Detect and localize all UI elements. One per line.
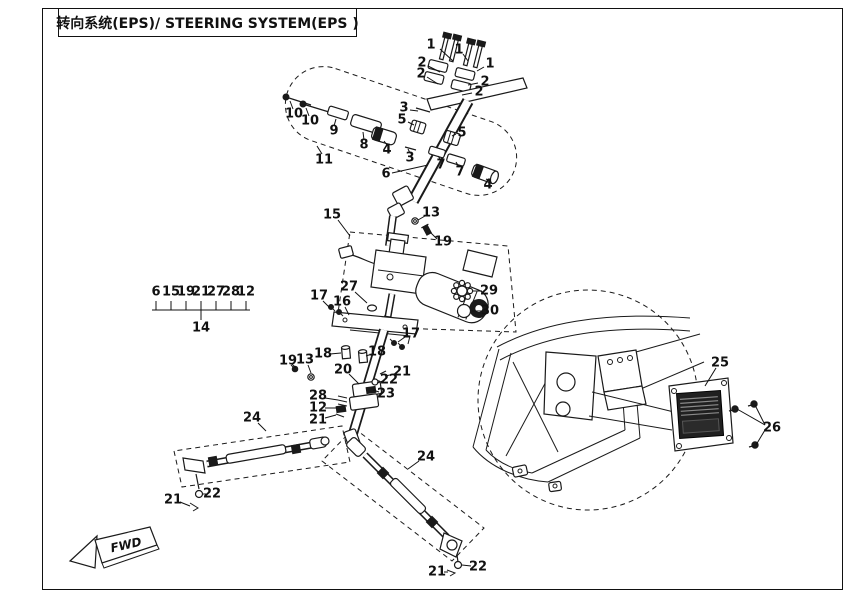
callout-2: 2 bbox=[416, 67, 425, 82]
callout-22: 22 bbox=[203, 487, 221, 502]
callout-17: 17 bbox=[310, 289, 328, 304]
part-coupler-29 bbox=[451, 280, 472, 301]
part-steering-column bbox=[413, 78, 527, 201]
callout-1: 1 bbox=[426, 38, 435, 53]
callout-7: 7 bbox=[455, 165, 464, 180]
callout-1: 1 bbox=[485, 57, 494, 72]
callout-6: 6 bbox=[381, 167, 390, 182]
callout-16: 16 bbox=[333, 295, 351, 310]
callout-10: 10 bbox=[301, 114, 319, 129]
callout-7: 7 bbox=[436, 158, 445, 173]
group14-number: 6 bbox=[151, 285, 160, 300]
part-oring-30 bbox=[458, 305, 471, 318]
callout-11: 11 bbox=[315, 153, 333, 168]
callout-19: 19 bbox=[279, 354, 297, 369]
parts-diagram-page: 转向系统(EPS)/ STEERING SYSTEM(EPS ) bbox=[0, 0, 860, 600]
group14-label: 14 bbox=[192, 321, 210, 336]
callout-19: 19 bbox=[434, 235, 452, 250]
diagram-canvas: FWD 615192127281214 11122223535774468910… bbox=[0, 0, 860, 600]
callout-5: 5 bbox=[397, 113, 406, 128]
callout-1: 1 bbox=[454, 43, 463, 58]
group14-number: 12 bbox=[237, 285, 255, 300]
callout-13: 13 bbox=[422, 206, 440, 221]
callout-5: 5 bbox=[457, 126, 466, 141]
callout-18: 18 bbox=[314, 347, 332, 362]
callout-24: 24 bbox=[243, 411, 261, 426]
callout-23: 23 bbox=[377, 387, 395, 402]
callout-20: 20 bbox=[334, 363, 352, 378]
fwd-arrow: FWD bbox=[70, 527, 159, 568]
callout-2: 2 bbox=[474, 85, 483, 100]
callout-18: 18 bbox=[368, 345, 386, 360]
callout-13: 13 bbox=[296, 353, 314, 368]
callout-27: 27 bbox=[340, 280, 358, 295]
part-eps-motor-unit bbox=[338, 233, 497, 328]
callout-25: 25 bbox=[711, 356, 729, 371]
callout-24: 24 bbox=[417, 450, 435, 465]
callout-4: 4 bbox=[483, 178, 492, 193]
callout-21: 21 bbox=[309, 413, 327, 428]
callout-15: 15 bbox=[323, 208, 341, 223]
callout-29: 29 bbox=[480, 284, 498, 299]
vehicle-frame-sketch bbox=[473, 290, 704, 510]
callout-9: 9 bbox=[329, 124, 338, 139]
group14-bracket: 615192127281214 bbox=[151, 285, 255, 336]
callout-3: 3 bbox=[405, 151, 414, 166]
callout-21: 21 bbox=[428, 565, 446, 580]
callout-4: 4 bbox=[382, 143, 391, 158]
callout-26: 26 bbox=[763, 421, 781, 436]
callout-17: 17 bbox=[402, 327, 420, 342]
leader-line bbox=[477, 67, 484, 71]
callout-22: 22 bbox=[469, 560, 487, 575]
callout-8: 8 bbox=[359, 138, 368, 153]
callout-22: 22 bbox=[380, 373, 398, 388]
leader-line bbox=[410, 110, 418, 111]
part-eps-controller bbox=[669, 378, 758, 451]
callout-21: 21 bbox=[164, 493, 182, 508]
callout-30: 30 bbox=[481, 304, 499, 319]
